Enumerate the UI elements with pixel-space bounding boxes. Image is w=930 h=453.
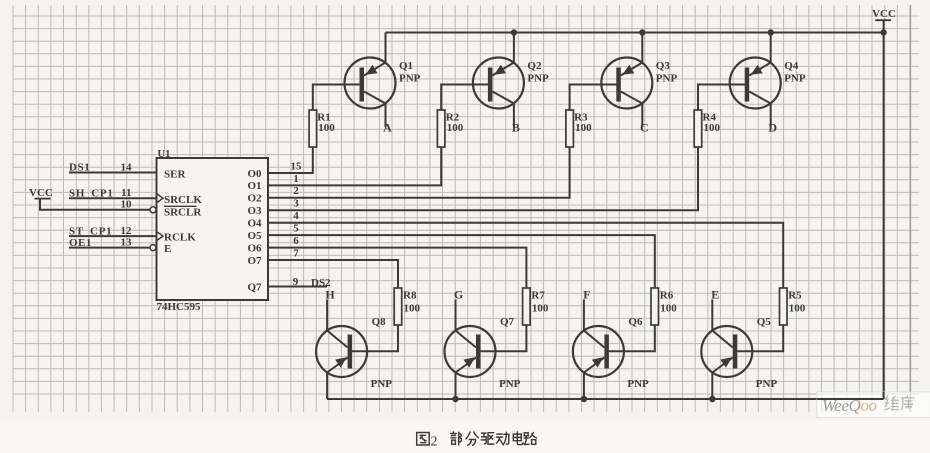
svg-text:DS1: DS1 [69,162,90,174]
svg-text:A: A [383,121,392,135]
svg-text:O1: O1 [247,180,261,192]
svg-text:PNP: PNP [399,73,421,85]
svg-text:12: 12 [121,225,133,237]
svg-text:1: 1 [293,173,299,185]
svg-text:10: 10 [121,199,133,211]
svg-text:R5: R5 [788,290,802,302]
svg-text:13: 13 [121,236,133,248]
svg-text:E: E [164,243,171,255]
svg-text:Q2: Q2 [527,60,542,72]
svg-text:Q7: Q7 [500,316,515,328]
svg-text:D: D [768,121,777,135]
svg-text:Q7: Q7 [247,281,262,293]
svg-text:SRCLR: SRCLR [164,207,202,219]
svg-text:PNP: PNP [527,73,549,85]
svg-text:2: 2 [293,185,299,197]
svg-text:B: B [512,121,520,135]
svg-text:ST_CP1: ST_CP1 [69,225,112,237]
svg-text:Q8: Q8 [372,316,387,328]
svg-text:14: 14 [121,162,133,174]
svg-text:6: 6 [293,235,299,247]
svg-text:2: 2 [431,434,438,449]
svg-text:WeeQoo: WeeQoo [822,396,877,415]
svg-text:C: C [640,121,649,135]
svg-text:SRCLK: SRCLK [164,194,202,206]
svg-text:Q3: Q3 [656,60,671,72]
svg-text:4: 4 [293,210,299,222]
svg-text:VCC: VCC [872,8,896,20]
svg-text:100: 100 [575,122,592,134]
svg-text:OE1: OE1 [69,237,92,249]
svg-text:74HC595: 74HC595 [157,301,202,313]
svg-text:Q4: Q4 [784,60,799,72]
svg-text:15: 15 [291,160,303,172]
svg-text:3: 3 [293,198,299,210]
svg-text:R7: R7 [531,290,545,302]
svg-text:O7: O7 [247,255,262,267]
svg-text:H: H [325,288,335,302]
svg-text:PNP: PNP [656,73,678,85]
svg-text:VCC: VCC [29,187,53,199]
svg-text:PNP: PNP [371,378,393,390]
svg-text:O2: O2 [247,193,262,205]
svg-text:100: 100 [447,122,464,134]
svg-text:7: 7 [293,247,299,259]
svg-text:Q6: Q6 [628,316,643,328]
svg-text:SH_CP1: SH_CP1 [69,188,114,200]
svg-text:O6: O6 [247,242,262,254]
svg-text:F: F [583,288,590,302]
svg-text:11: 11 [121,187,131,199]
svg-text:O0: O0 [247,168,262,180]
svg-text:O5: O5 [247,230,262,242]
svg-text:100: 100 [704,122,721,134]
svg-text:E: E [711,288,719,302]
svg-text:O4: O4 [247,218,262,230]
svg-text:100: 100 [789,303,806,315]
svg-text:100: 100 [660,303,677,315]
svg-text:R8: R8 [403,290,417,302]
svg-text:Q5: Q5 [757,316,772,328]
svg-text:U1: U1 [158,149,171,160]
svg-text:O3: O3 [247,205,262,217]
svg-text:100: 100 [318,122,335,134]
svg-text:100: 100 [532,303,549,315]
svg-text:RCLK: RCLK [164,231,196,243]
svg-text:R6: R6 [660,290,674,302]
svg-text:SER: SER [164,169,186,181]
svg-text:PNP: PNP [756,378,778,390]
svg-text:PNP: PNP [627,378,649,390]
svg-text:5: 5 [293,223,299,235]
svg-text:PNP: PNP [499,378,521,390]
svg-text:9: 9 [293,276,299,288]
svg-text:100: 100 [404,303,421,315]
svg-text:G: G [454,288,463,302]
svg-text:Q1: Q1 [399,60,413,72]
svg-text:PNP: PNP [784,73,806,85]
